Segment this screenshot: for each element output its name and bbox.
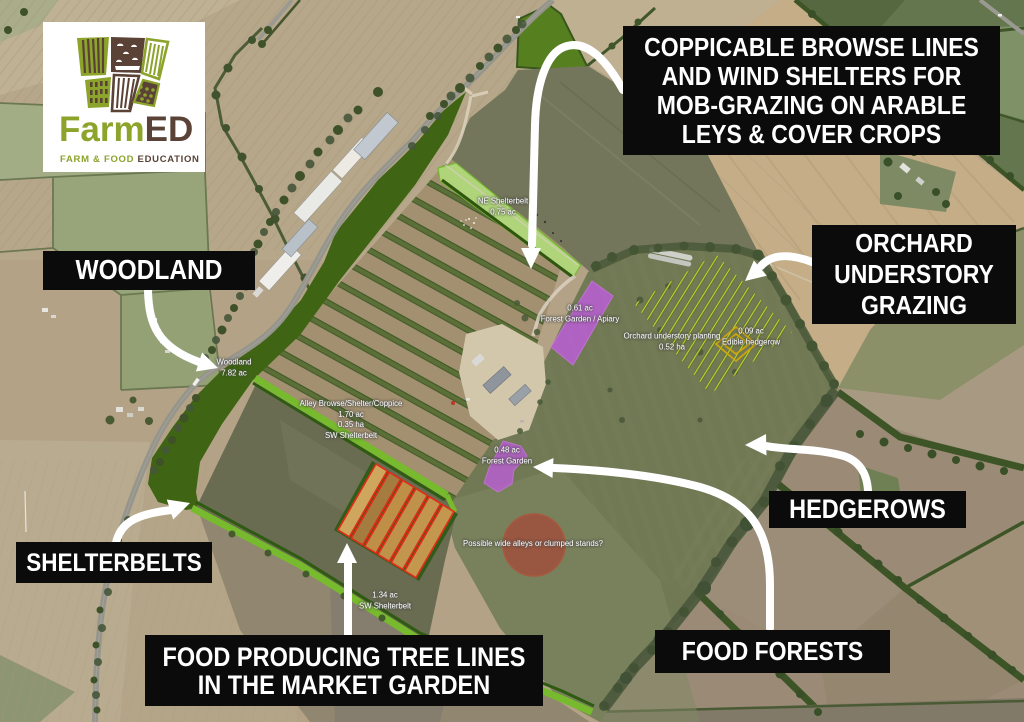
svg-text:FarmED: FarmED xyxy=(59,110,193,149)
svg-text:FARM & FOOD EDUCATION: FARM & FOOD EDUCATION xyxy=(60,154,200,165)
